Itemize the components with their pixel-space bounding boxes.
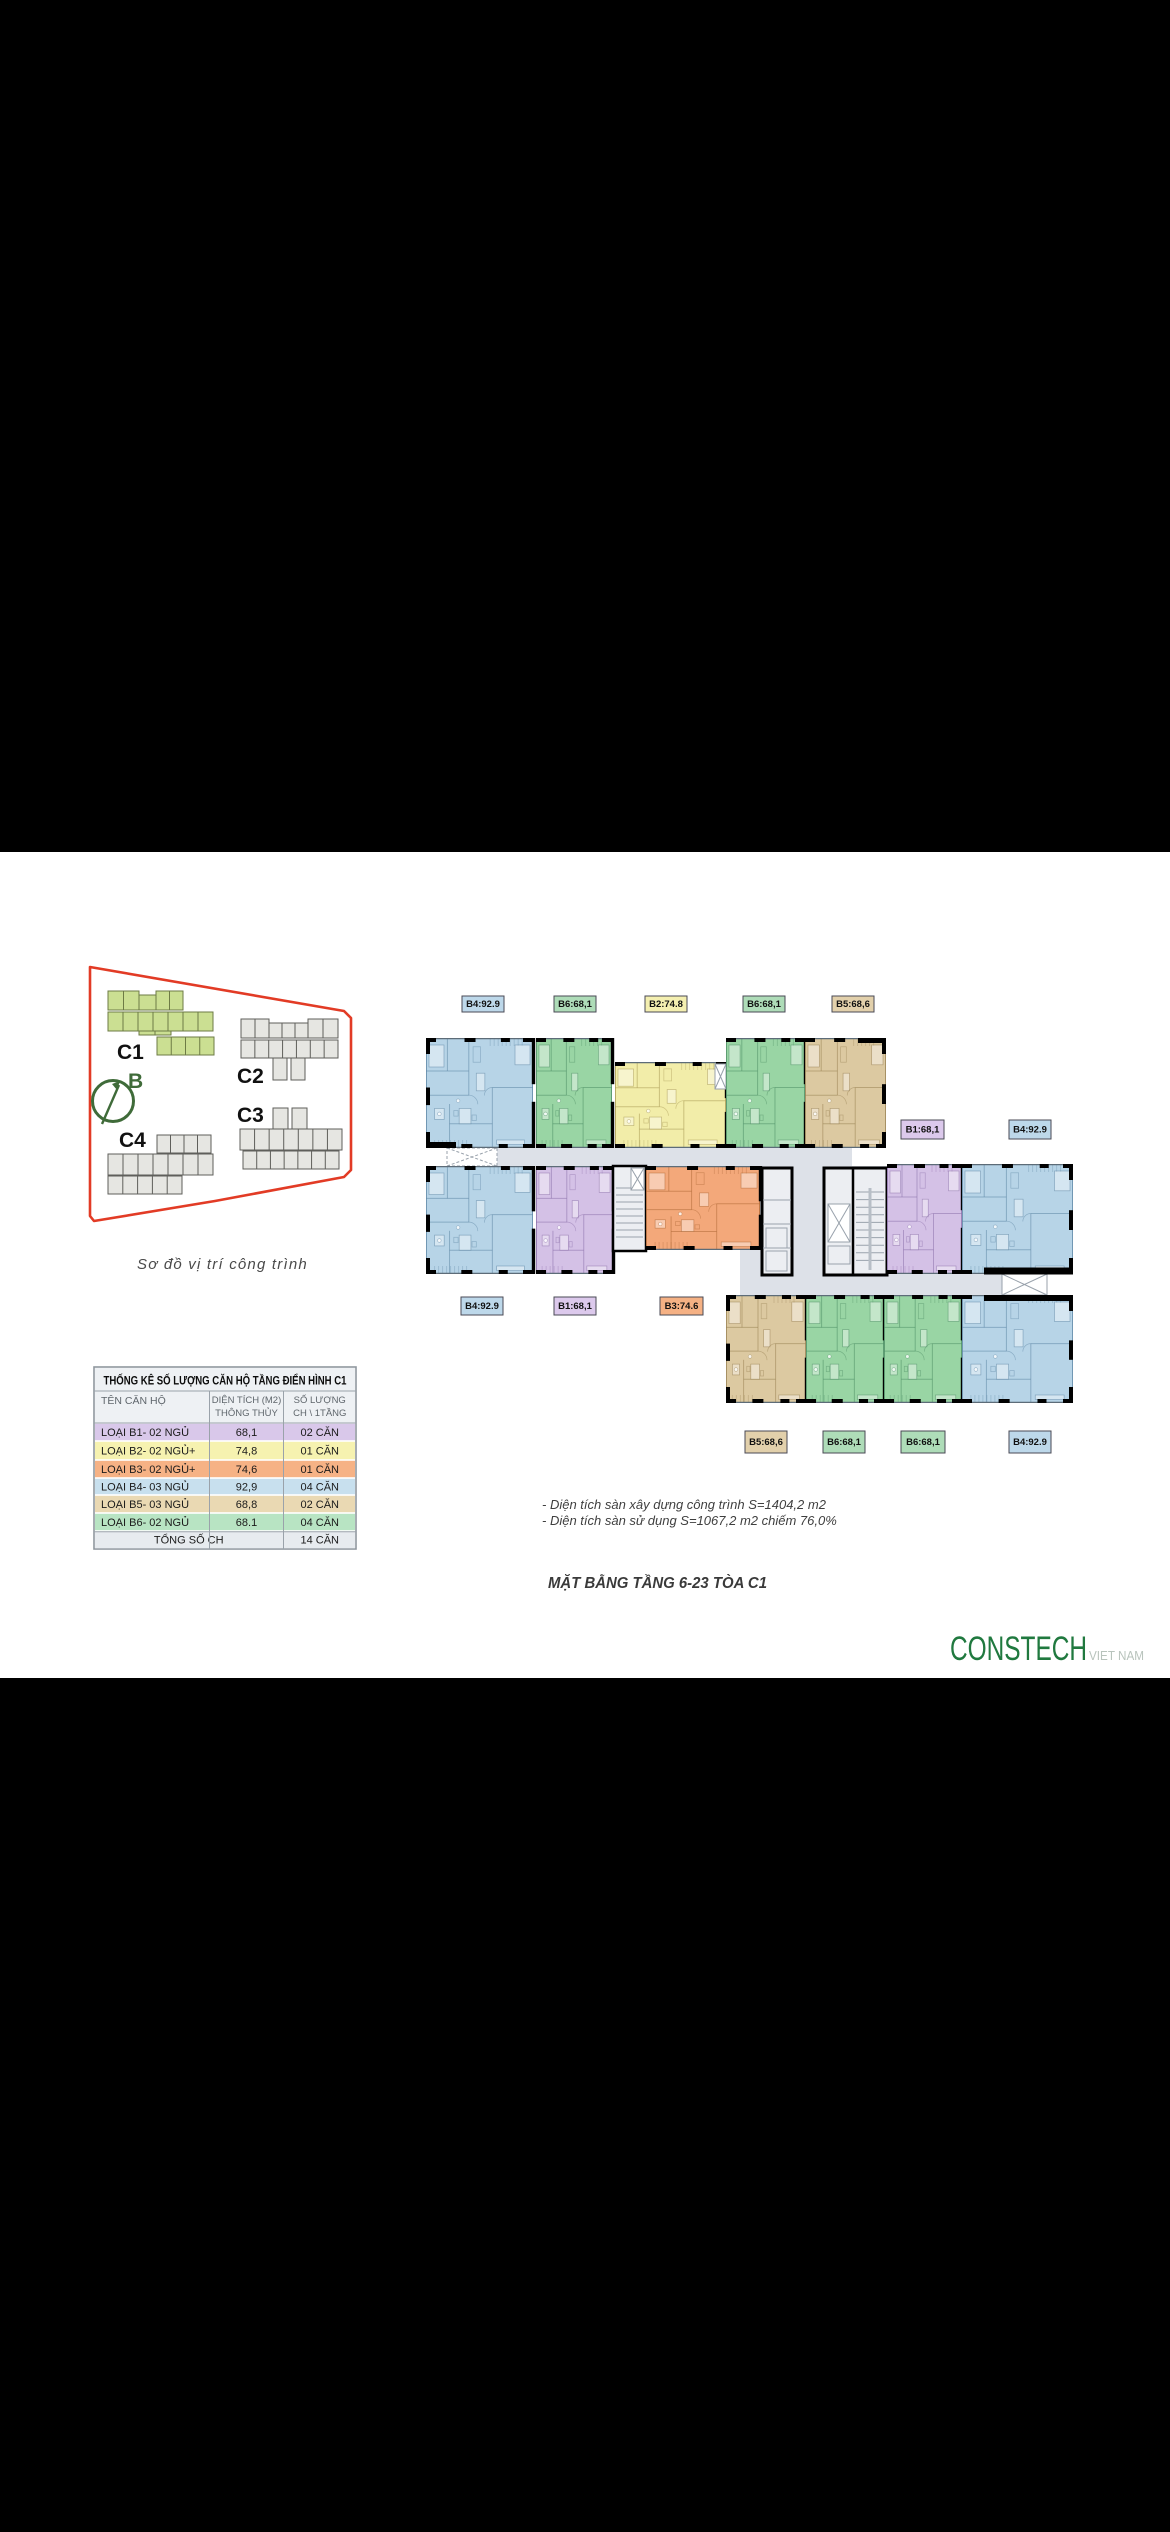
svg-text:Sơ đồ vị trí công trình: Sơ đồ vị trí công trình xyxy=(137,1256,308,1273)
svg-text:68.1: 68.1 xyxy=(236,1517,257,1529)
svg-text:LOẠI B6- 02 NGỦ: LOẠI B6- 02 NGỦ xyxy=(101,1516,189,1529)
svg-text:68,1: 68,1 xyxy=(236,1427,257,1439)
svg-text:02 CĂN: 02 CĂN xyxy=(300,1426,339,1439)
svg-text:B1:68,1: B1:68,1 xyxy=(906,1125,941,1136)
svg-text:CH \ 1TẦNG: CH \ 1TẦNG xyxy=(293,1408,346,1419)
svg-text:C2: C2 xyxy=(237,1065,264,1088)
svg-text:- Diện tích sàn sử dụng S=1067: - Diện tích sàn sử dụng S=1067,2 m2 chiế… xyxy=(542,1513,837,1528)
svg-text:B5:68,6: B5:68,6 xyxy=(836,999,870,1010)
svg-text:LOẠI B4- 03 NGỦ: LOẠI B4- 03 NGỦ xyxy=(101,1480,189,1493)
svg-text:LOẠI B2- 02 NGỦ+: LOẠI B2- 02 NGỦ+ xyxy=(101,1444,195,1457)
svg-text:B4:92.9: B4:92.9 xyxy=(465,1301,499,1312)
svg-text:B1:68,1: B1:68,1 xyxy=(558,1301,593,1312)
svg-text:B6:68,1: B6:68,1 xyxy=(906,1437,941,1448)
svg-text:B6:68,1: B6:68,1 xyxy=(558,999,593,1010)
svg-text:B2:74.8: B2:74.8 xyxy=(649,999,683,1010)
svg-text:02 CĂN: 02 CĂN xyxy=(300,1498,339,1511)
svg-text:B4:92.9: B4:92.9 xyxy=(1013,1125,1047,1136)
svg-text:C3: C3 xyxy=(237,1104,264,1127)
svg-text:LOẠI B5- 03 NGỦ: LOẠI B5- 03 NGỦ xyxy=(101,1498,189,1511)
svg-text:THÔNG THỦY: THÔNG THỦY xyxy=(215,1407,278,1419)
svg-text:74,8: 74,8 xyxy=(236,1445,257,1457)
svg-text:DIỆN TÍCH (M2): DIỆN TÍCH (M2) xyxy=(212,1395,282,1406)
svg-text:14 CĂN: 14 CĂN xyxy=(300,1534,339,1547)
svg-text:B: B xyxy=(128,1070,143,1093)
svg-text:92,9: 92,9 xyxy=(236,1481,257,1493)
svg-text:B6:68,1: B6:68,1 xyxy=(747,999,782,1010)
svg-text:B3:74.6: B3:74.6 xyxy=(665,1301,699,1312)
svg-text:C4: C4 xyxy=(119,1129,146,1152)
svg-text:01 CĂN: 01 CĂN xyxy=(300,1463,339,1476)
svg-text:C1: C1 xyxy=(117,1041,144,1064)
svg-text:LOẠI B1- 02 NGỦ: LOẠI B1- 02 NGỦ xyxy=(101,1426,189,1439)
svg-text:THỐNG KÊ SỐ LƯỢNG CĂN HỘ TẦNG: THỐNG KÊ SỐ LƯỢNG CĂN HỘ TẦNG ĐIỂN HÌNH … xyxy=(104,1373,347,1388)
svg-text:04 CĂN: 04 CĂN xyxy=(300,1516,339,1529)
svg-text:CONSTECH: CONSTECH xyxy=(950,1630,1087,1668)
svg-text:- Diện tích sàn xây dựng công: - Diện tích sàn xây dựng công trình S=14… xyxy=(542,1497,827,1512)
svg-text:74,6: 74,6 xyxy=(236,1464,257,1476)
svg-text:04 CĂN: 04 CĂN xyxy=(300,1480,339,1493)
svg-text:B4:92.9: B4:92.9 xyxy=(466,999,500,1010)
svg-text:TÊN CĂN HỘ: TÊN CĂN HỘ xyxy=(101,1394,166,1407)
svg-text:B6:68,1: B6:68,1 xyxy=(827,1437,862,1448)
svg-text:LOẠI B3- 02 NGỦ+: LOẠI B3- 02 NGỦ+ xyxy=(101,1463,195,1476)
svg-text:VIET NAM: VIET NAM xyxy=(1089,1649,1144,1663)
svg-text:SỐ LƯỢNG: SỐ LƯỢNG xyxy=(294,1394,346,1406)
svg-text:TỔNG SỐ CH: TỔNG SỐ CH xyxy=(154,1533,224,1547)
svg-text:B4:92.9: B4:92.9 xyxy=(1013,1437,1047,1448)
svg-text:MẶT BẰNG TẦNG 6-23 TÒA C1: MẶT BẰNG TẦNG 6-23 TÒA C1 xyxy=(548,1573,767,1592)
svg-text:B5:68,6: B5:68,6 xyxy=(749,1437,783,1448)
svg-text:01 CĂN: 01 CĂN xyxy=(300,1444,339,1457)
svg-text:68,8: 68,8 xyxy=(236,1499,257,1511)
